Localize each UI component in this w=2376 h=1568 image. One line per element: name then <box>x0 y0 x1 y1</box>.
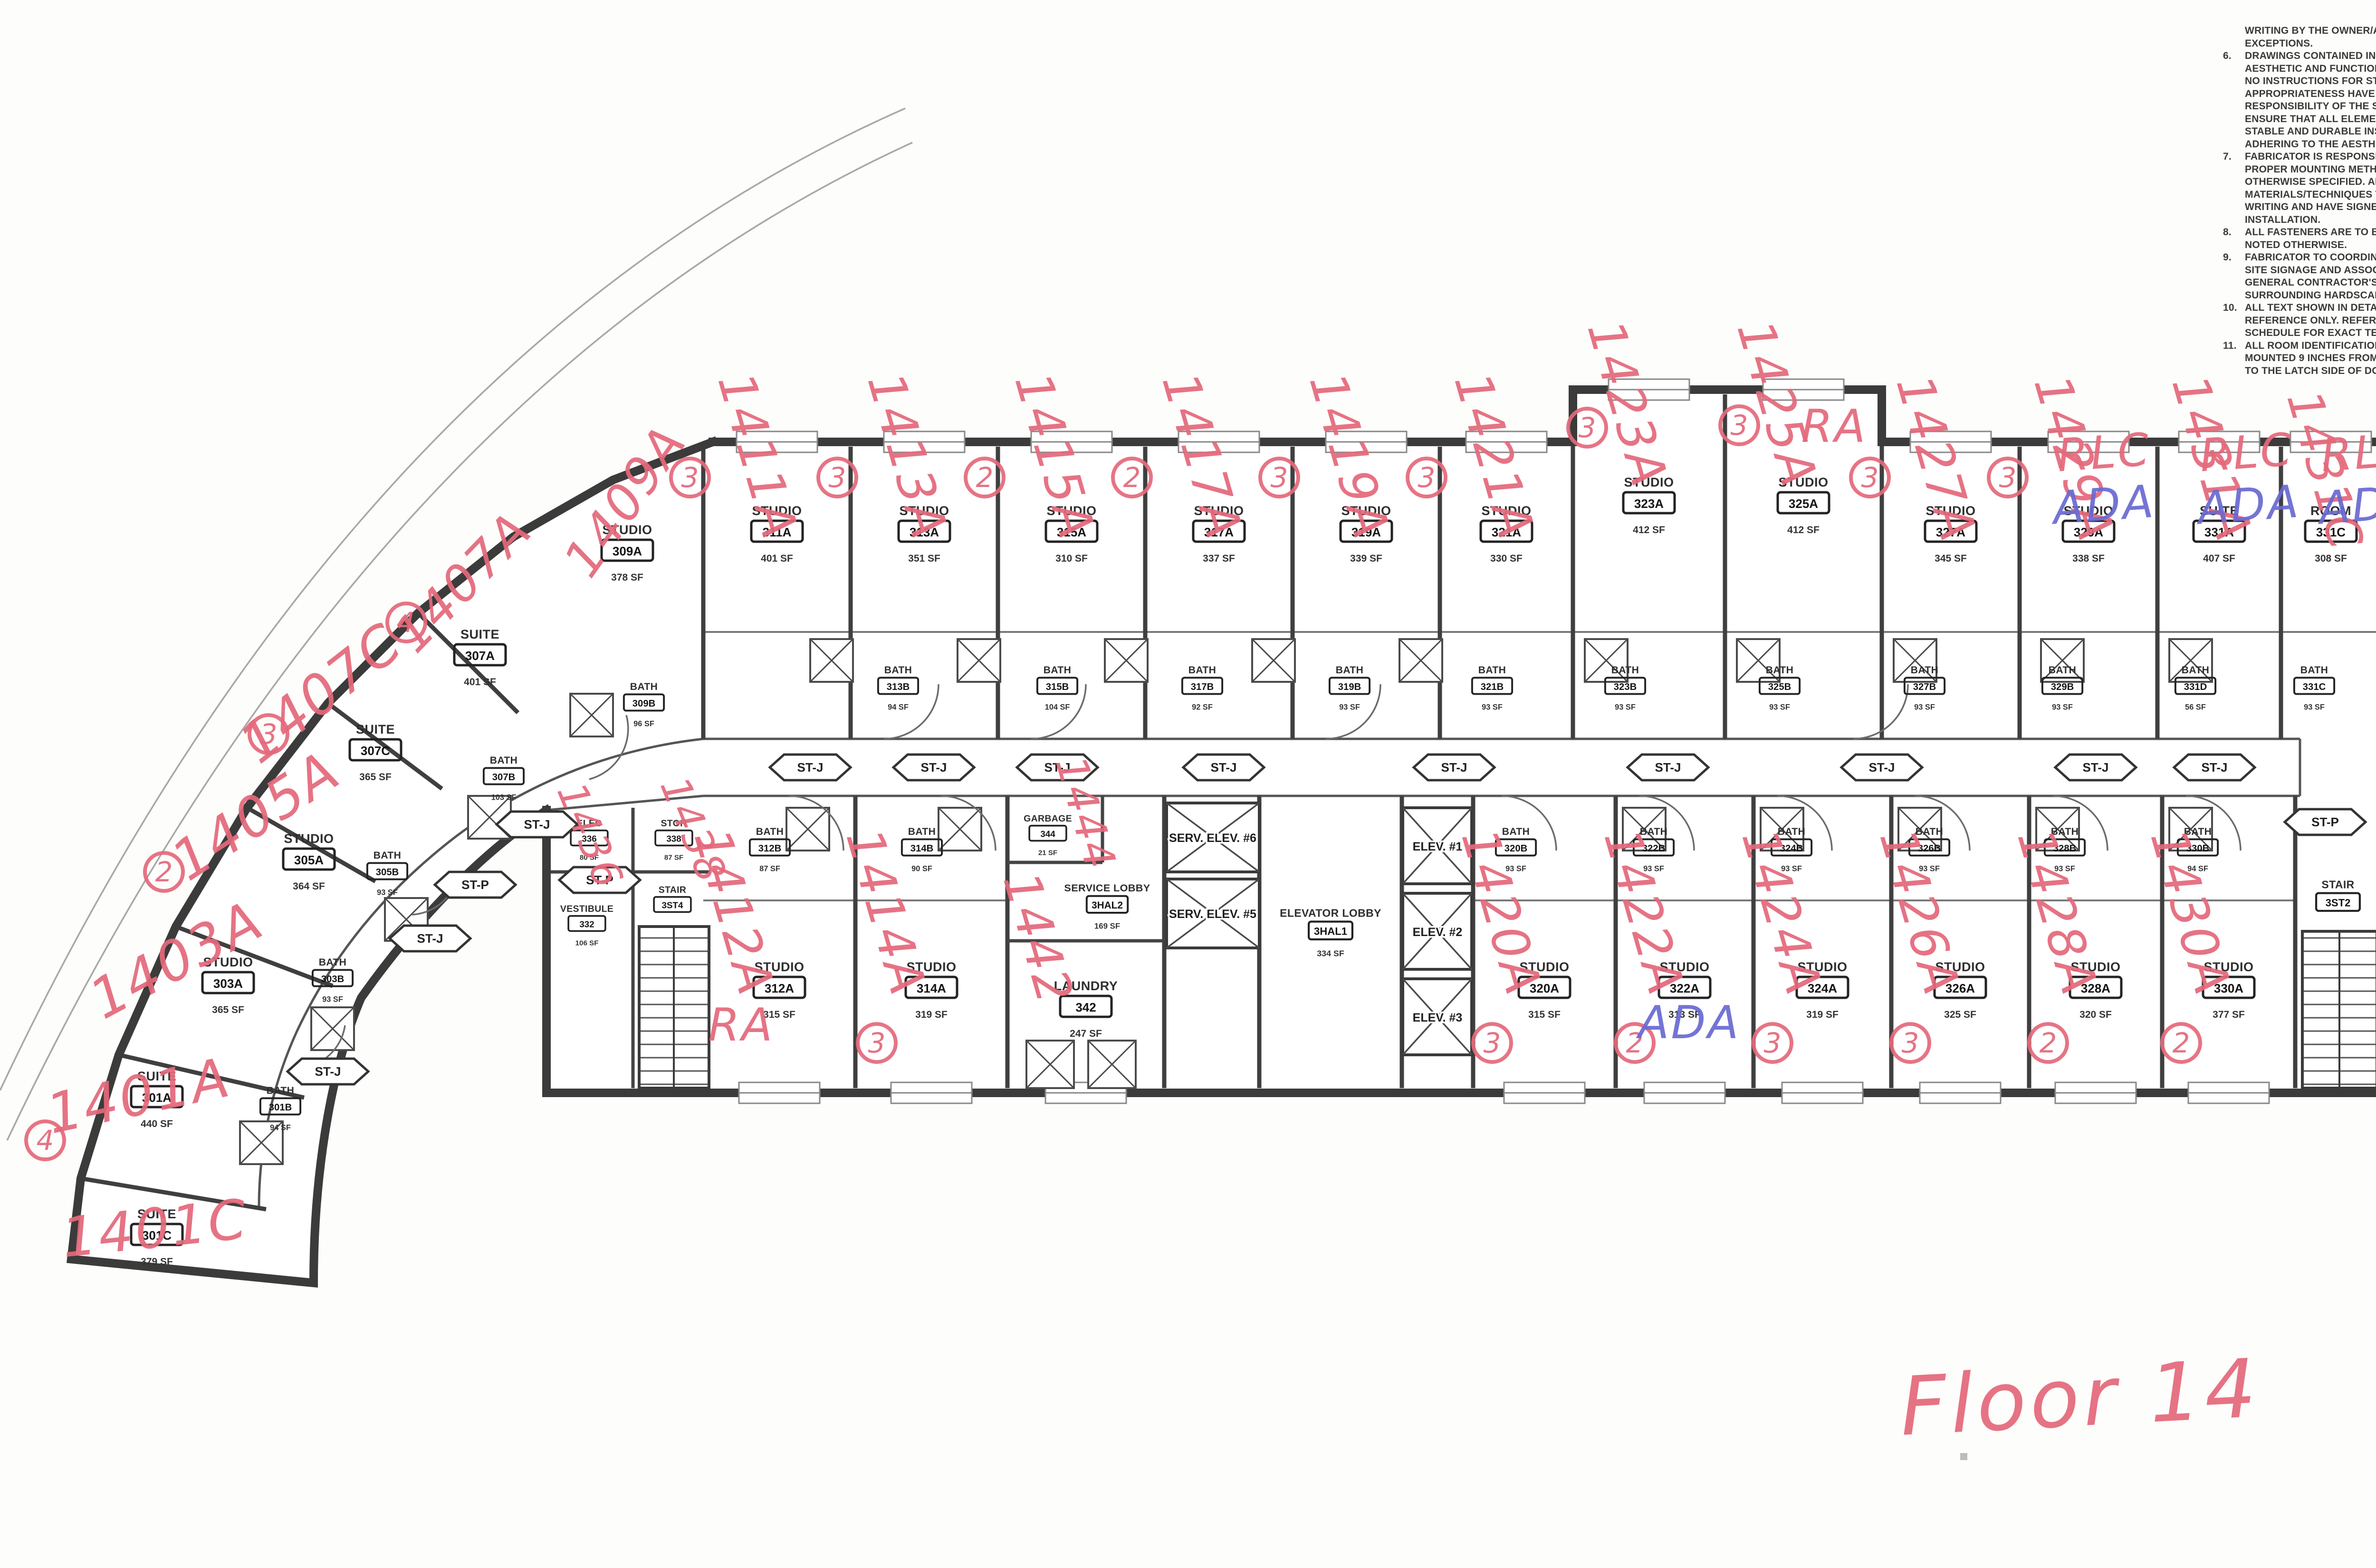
svg-text:3: 3 <box>1731 409 1748 441</box>
svg-text:SUITE: SUITE <box>460 627 499 641</box>
corridor-sign-tag: ST-J <box>770 755 851 780</box>
handwritten-annotation: ADA <box>1635 997 1740 1049</box>
svg-text:STAIR: STAIR <box>2321 878 2354 890</box>
svg-text:2: 2 <box>976 461 994 494</box>
note-line: 7. FABRICATOR IS RESPONSIBLE FOR DETERMI… <box>2223 151 2376 163</box>
svg-text:ST-J: ST-J <box>1211 760 1237 774</box>
svg-text:3: 3 <box>868 1027 886 1059</box>
svg-text:93 SF: 93 SF <box>1339 703 1360 711</box>
svg-text:ST-P: ST-P <box>461 878 489 892</box>
svg-text:3HAL2: 3HAL2 <box>1092 900 1123 911</box>
svg-text:401 SF: 401 SF <box>761 553 793 564</box>
svg-text:315 SF: 315 SF <box>1528 1009 1561 1020</box>
note-line: SCHEDULE FOR EXACT TEXT ON EACH SIGN. <box>2223 327 2376 340</box>
svg-text:STAIR: STAIR <box>659 885 687 895</box>
svg-text:3: 3 <box>829 461 846 494</box>
svg-text:3ST2: 3ST2 <box>2326 897 2351 909</box>
svg-text:327B: 327B <box>1913 682 1936 692</box>
svg-text:332: 332 <box>579 919 594 929</box>
svg-text:BATH: BATH <box>319 957 346 968</box>
svg-text:313B: 313B <box>887 682 910 692</box>
svg-text:312B: 312B <box>758 843 781 854</box>
svg-text:3HAL1: 3HAL1 <box>1314 926 1347 937</box>
general-notes: WRITING BY THE OWNER/ARCHITECT. NO EXCEP… <box>2223 25 2376 377</box>
svg-text:ST-J: ST-J <box>315 1064 341 1079</box>
svg-text:BATH: BATH <box>490 755 517 766</box>
svg-text:ST-J: ST-J <box>524 817 550 832</box>
window <box>891 1082 972 1103</box>
svg-text:247 SF: 247 SF <box>1070 1028 1102 1039</box>
svg-text:315B: 315B <box>1046 682 1069 692</box>
svg-text:ELEV. #2: ELEV. #2 <box>1413 926 1463 939</box>
svg-text:307C: 307C <box>361 744 390 758</box>
svg-text:SERV. ELEV. #6: SERV. ELEV. #6 <box>1169 832 1256 845</box>
corridor-sign-tag: ST-J <box>1414 755 1495 780</box>
closet-box <box>1252 639 1295 682</box>
svg-text:345 SF: 345 SF <box>1935 553 1967 564</box>
closet-box <box>958 639 1000 682</box>
svg-text:337 SF: 337 SF <box>1203 553 1235 564</box>
corridor-sign-tag: ST-J <box>1841 755 1922 780</box>
svg-text:SERV. ELEV. #5: SERV. ELEV. #5 <box>1169 908 1256 921</box>
svg-text:BATH: BATH <box>1911 665 1938 676</box>
svg-text:339 SF: 339 SF <box>1350 553 1382 564</box>
svg-text:93 SF: 93 SF <box>322 995 343 1004</box>
svg-text:ST-J: ST-J <box>2202 760 2228 774</box>
note-line: 9. FABRICATOR TO COORDINATE THE INSTALLA… <box>2223 251 2376 264</box>
svg-text:90 SF: 90 SF <box>911 864 932 873</box>
note-line: STABLE AND DURABLE INSTALLATION WHILE <box>2223 125 2376 138</box>
svg-text:2: 2 <box>2173 1027 2190 1059</box>
svg-text:3: 3 <box>1902 1027 1919 1059</box>
svg-text:3: 3 <box>1579 411 1596 444</box>
handwritten-annotation: RLC <box>2198 423 2295 482</box>
svg-text:ST-J: ST-J <box>1441 760 1467 774</box>
svg-text:103 SF: 103 SF <box>491 793 517 802</box>
svg-text:3: 3 <box>1484 1027 1501 1059</box>
note-line: OTHERWISE SPECIFIED. ALL MOUNTING <box>2223 176 2376 189</box>
svg-text:94 SF: 94 SF <box>888 703 909 711</box>
svg-text:ST-J: ST-J <box>1869 760 1895 774</box>
svg-text:319B: 319B <box>1338 682 1361 692</box>
svg-text:93 SF: 93 SF <box>1615 703 1636 711</box>
note-line: MATERIALS/TECHNIQUES TO BE APPROVED I <box>2223 189 2376 201</box>
window <box>1920 1082 2001 1103</box>
svg-text:321B: 321B <box>1481 682 1504 692</box>
note-line: ENSURE THAT ALL ELEMENTS ARE FABRICATE <box>2223 113 2376 126</box>
corridor-sign-tag: ST-J <box>1183 755 1264 780</box>
svg-text:378 SF: 378 SF <box>611 572 643 583</box>
svg-text:STUDIO: STUDIO <box>284 832 334 846</box>
svg-text:93 SF: 93 SF <box>1482 703 1503 711</box>
note-line: AESTHETIC AND FUNCTIONAL DESIGN INTENT <box>2223 63 2376 76</box>
svg-text:303B: 303B <box>321 974 344 985</box>
svg-text:323A: 323A <box>1634 497 1664 511</box>
svg-text:BATH: BATH <box>2049 665 2076 676</box>
svg-text:307A: 307A <box>465 649 495 663</box>
floor-plan-drawing: SERV. ELEV. #6 SERV. ELEV. #5 ELEV. #1 E… <box>0 0 2376 1568</box>
handwritten-annotation: RA <box>709 999 775 1052</box>
svg-text:2: 2 <box>2040 1027 2057 1059</box>
elevator-shaft: SERV. ELEV. #6 <box>1167 803 1259 872</box>
svg-text:365 SF: 365 SF <box>359 772 392 783</box>
svg-text:3: 3 <box>1764 1027 1782 1059</box>
svg-text:365 SF: 365 SF <box>212 1004 244 1015</box>
svg-text:93 SF: 93 SF <box>1914 703 1935 711</box>
note-line: WRITING AND HAVE SIGNED APPROVAL PRIO <box>2223 201 2376 214</box>
svg-text:407 SF: 407 SF <box>2203 553 2235 564</box>
window <box>739 1082 820 1103</box>
svg-text:3: 3 <box>1999 461 2017 494</box>
closet-box <box>939 808 981 851</box>
svg-text:329B: 329B <box>2051 682 2074 692</box>
corridor-sign-tag: ST-J <box>893 755 974 780</box>
svg-text:ELEV. #3: ELEV. #3 <box>1413 1011 1463 1024</box>
note-line: NO INSTRUCTIONS FOR STRUCTURAL <box>2223 75 2376 88</box>
svg-text:330 SF: 330 SF <box>1490 553 1523 564</box>
corridor-sign-tag: ST-P <box>2285 809 2366 835</box>
svg-text:323B: 323B <box>1614 682 1637 692</box>
note-line: ADHERING TO THE AESTHETIC DETAILS INDIC <box>2223 138 2376 151</box>
svg-text:BATH: BATH <box>374 850 401 861</box>
elevator-shaft: SERV. ELEV. #5 <box>1167 879 1259 948</box>
svg-text:BATH: BATH <box>630 681 658 692</box>
svg-text:351 SF: 351 SF <box>908 553 940 564</box>
svg-text:338 SF: 338 SF <box>2072 553 2105 564</box>
svg-text:305B: 305B <box>376 867 399 878</box>
svg-text:87 SF: 87 SF <box>759 864 780 873</box>
svg-text:401 SF: 401 SF <box>464 677 496 688</box>
svg-text:56 SF: 56 SF <box>2185 703 2206 711</box>
svg-text:334 SF: 334 SF <box>1317 949 1344 958</box>
corridor-sign-tag: ST-J <box>1628 755 1708 780</box>
svg-text:364 SF: 364 SF <box>293 881 325 892</box>
svg-text:307B: 307B <box>492 772 515 783</box>
window <box>1644 1082 1725 1103</box>
svg-text:308 SF: 308 SF <box>2315 553 2347 564</box>
svg-text:325B: 325B <box>1768 682 1791 692</box>
svg-text:ST-J: ST-J <box>797 760 824 774</box>
svg-text:SERVICE LOBBY: SERVICE LOBBY <box>1064 882 1150 894</box>
closet-box <box>1105 639 1148 682</box>
note-line: SURROUNDING HARDSCAPE. <box>2223 289 2376 302</box>
note-line: RESPONSIBILITY OF THE SIGNAGE FABRICATO <box>2223 100 2376 113</box>
svg-text:94 SF: 94 SF <box>270 1123 291 1132</box>
corridor-sign-tag: ST-J <box>2055 755 2136 780</box>
svg-text:3: 3 <box>1271 461 1288 494</box>
closet-box <box>570 694 613 736</box>
svg-text:309B: 309B <box>632 698 655 709</box>
window <box>1782 1082 1863 1103</box>
note-line: NOTED OTHERWISE. <box>2223 239 2376 252</box>
svg-text:303A: 303A <box>213 976 243 991</box>
window <box>1504 1082 1585 1103</box>
note-line: INSTALLATION. <box>2223 214 2376 227</box>
svg-text:169 SF: 169 SF <box>1094 922 1120 931</box>
svg-text:BATH: BATH <box>756 826 784 837</box>
svg-text:2: 2 <box>155 856 173 888</box>
note-line: 10. ALL TEXT SHOWN IN DETAIL DRAWINGS IS… <box>2223 302 2376 315</box>
note-line: EXCEPTIONS. <box>2223 38 2376 50</box>
svg-text:BATH: BATH <box>2300 665 2328 676</box>
svg-text:BATH: BATH <box>1478 665 1506 676</box>
svg-text:314B: 314B <box>910 843 933 854</box>
handwritten-annotation: ADA <box>2194 476 2302 535</box>
svg-text:BATH: BATH <box>1766 665 1793 676</box>
handwritten-annotation: RLC <box>2319 423 2376 482</box>
corridor-sign-tag: ST-J <box>287 1059 368 1084</box>
svg-text:21 SF: 21 SF <box>1038 849 1057 857</box>
svg-text:ELEVATOR LOBBY: ELEVATOR LOBBY <box>1280 907 1381 919</box>
svg-text:319 SF: 319 SF <box>915 1009 948 1020</box>
svg-text:331C: 331C <box>2303 682 2326 692</box>
note-line: PROPER MOUNTING METHODS FOR SIGNS UN <box>2223 163 2376 176</box>
svg-text:ST-J: ST-J <box>2083 760 2109 774</box>
svg-text:SUITE: SUITE <box>356 722 395 736</box>
svg-text:BATH: BATH <box>1611 665 1639 676</box>
svg-text:BATH: BATH <box>908 826 936 837</box>
handwritten-annotation: ADA <box>2049 476 2157 535</box>
svg-text:ST-J: ST-J <box>921 760 947 774</box>
svg-text:93 SF: 93 SF <box>1769 703 1790 711</box>
svg-text:2: 2 <box>1123 461 1141 494</box>
closet-box <box>1399 639 1442 682</box>
corridor-sign-tag: ST-J <box>390 926 470 951</box>
closet-box <box>311 1007 354 1050</box>
svg-text:BATH: BATH <box>1044 665 1071 676</box>
handwritten-annotation: ADA <box>2315 476 2376 535</box>
svg-text:BATH: BATH <box>2182 665 2209 676</box>
svg-text:3: 3 <box>1861 461 1879 494</box>
svg-text:310 SF: 310 SF <box>1055 553 1088 564</box>
svg-text:BATH: BATH <box>1336 665 1363 676</box>
svg-text:93 SF: 93 SF <box>2052 703 2073 711</box>
svg-text:ST-P: ST-P <box>2311 815 2339 829</box>
svg-text:325A: 325A <box>1789 497 1818 511</box>
svg-text:93 SF: 93 SF <box>377 888 398 897</box>
floor-label: Floor 14 <box>1898 1341 2262 1454</box>
svg-text:ST-J: ST-J <box>417 931 443 946</box>
svg-text:BATH: BATH <box>884 665 912 676</box>
svg-text:92 SF: 92 SF <box>1192 703 1213 711</box>
svg-text:319 SF: 319 SF <box>1806 1009 1839 1020</box>
corridor-sign-tag: ST-J <box>2174 755 2255 780</box>
svg-text:331D: 331D <box>2184 682 2207 692</box>
svg-text:412 SF: 412 SF <box>1787 525 1820 535</box>
window <box>2055 1082 2136 1103</box>
svg-text:317B: 317B <box>1191 682 1214 692</box>
svg-text:377 SF: 377 SF <box>2213 1009 2245 1020</box>
svg-text:325 SF: 325 SF <box>1944 1009 1976 1020</box>
svg-text:BATH: BATH <box>1188 665 1216 676</box>
svg-text:320 SF: 320 SF <box>2079 1009 2112 1020</box>
note-line: REFERENCE ONLY. REFER TO SIGNAGE MESSA <box>2223 315 2376 327</box>
handwritten-annotation: RLC <box>2056 423 2153 482</box>
scan-artifact-dot <box>1960 1453 1967 1460</box>
svg-text:106 SF: 106 SF <box>575 939 599 947</box>
svg-text:VESTIBULE: VESTIBULE <box>560 904 613 914</box>
svg-text:104 SF: 104 SF <box>1045 703 1070 711</box>
svg-text:301B: 301B <box>269 1102 292 1113</box>
svg-text:BATH: BATH <box>267 1085 294 1096</box>
note-line: 6. DRAWINGS CONTAINED IN THIS PACKAGE AR <box>2223 50 2376 63</box>
note-line: 8. ALL FASTENERS ARE TO BE CONCEALED UNL… <box>2223 226 2376 239</box>
svg-text:ST-J: ST-J <box>1655 760 1681 774</box>
note-line: MOUNTED 9 INCHES FROM THE CENTER OF T <box>2223 352 2376 365</box>
svg-text:412 SF: 412 SF <box>1633 525 1665 535</box>
closet-box <box>786 808 829 851</box>
svg-text:3ST4: 3ST4 <box>662 900 683 910</box>
closet-box <box>1026 1041 1074 1088</box>
corridor-sign-tag: ST-P <box>435 872 516 898</box>
note-line: GENERAL CONTRACTOR'S INSTALLATION OF T <box>2223 277 2376 289</box>
svg-text:96 SF: 96 SF <box>633 719 654 728</box>
note-line: WRITING BY THE OWNER/ARCHITECT. NO <box>2223 25 2376 38</box>
note-line: SITE SIGNAGE AND ASSOCIATED FOOTINGS W <box>2223 264 2376 277</box>
closet-box <box>810 639 853 682</box>
svg-text:3: 3 <box>1418 461 1436 494</box>
svg-text:305A: 305A <box>294 853 324 867</box>
svg-text:344: 344 <box>1040 829 1055 839</box>
handwritten-annotation: RA <box>1801 401 1868 453</box>
note-line: TO THE LATCH SIDE OF DOOR FRAME. <box>2223 365 2376 378</box>
svg-text:342: 342 <box>1075 1000 1096 1014</box>
note-line: APPROPRIATENESS HAVE BEEN MADE. IT IS T <box>2223 88 2376 101</box>
window <box>2188 1082 2269 1103</box>
closet-box <box>1088 1041 1136 1088</box>
svg-text:93 SF: 93 SF <box>2304 703 2325 711</box>
note-line: 11. ALL ROOM IDENTIFICATIONS SIGNS ARE T… <box>2223 340 2376 353</box>
elevator-shaft: ELEV. #3 <box>1403 979 1472 1055</box>
elevator-shaft: ELEV. #2 <box>1403 893 1472 969</box>
